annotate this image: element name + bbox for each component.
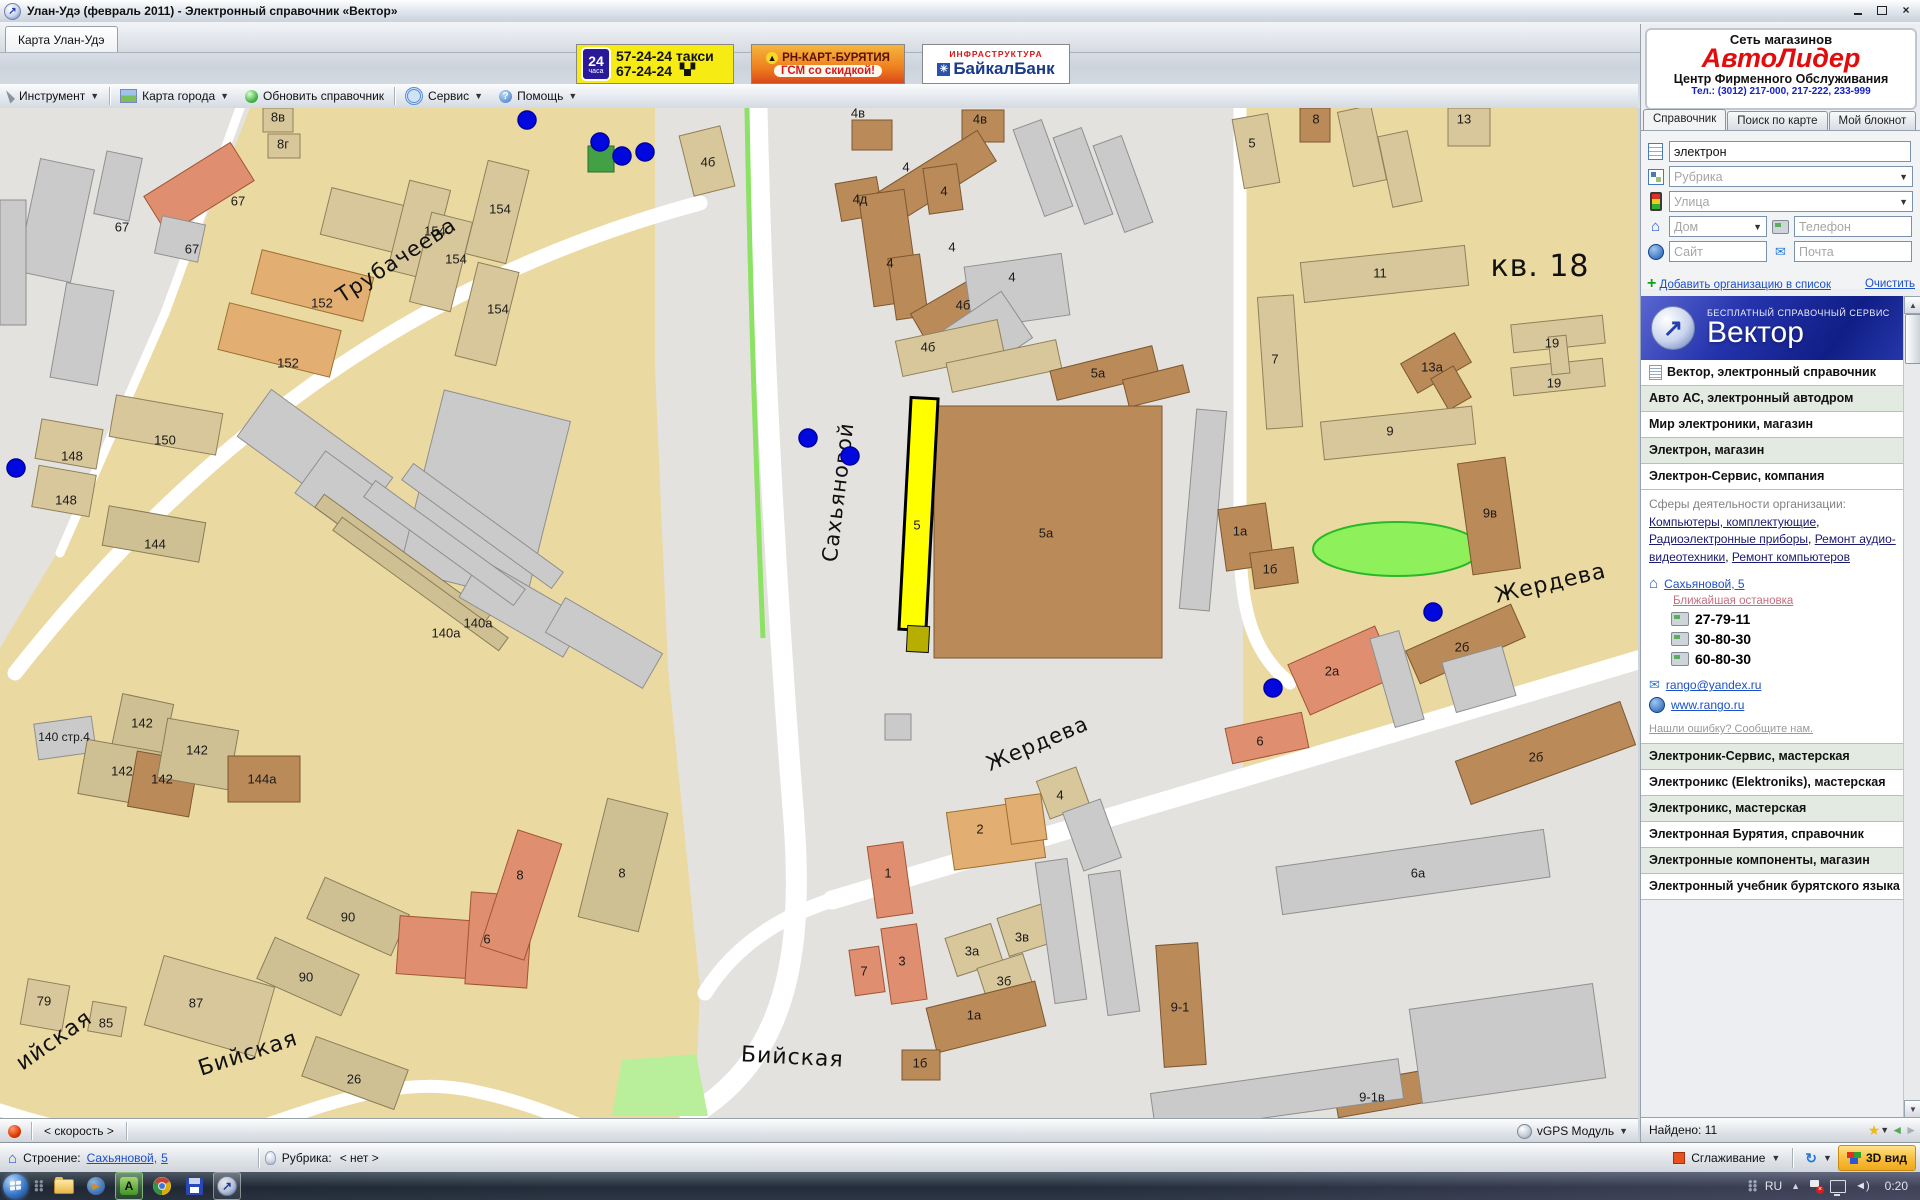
- bus-stop-marker[interactable]: [799, 429, 817, 447]
- address-link[interactable]: Сахьяновой, 5: [1664, 577, 1744, 591]
- building-number-link[interactable]: 5: [161, 1151, 168, 1165]
- building-label: 4в: [851, 108, 865, 120]
- building-label: 4: [1056, 787, 1063, 802]
- email-icon: ✉: [1649, 677, 1660, 693]
- phone-number: 27-79-11: [1695, 611, 1750, 627]
- building-label: 148: [61, 448, 83, 463]
- map-icon: [120, 89, 137, 103]
- building-label: 8в: [271, 109, 285, 124]
- building-label: 6а: [1411, 865, 1426, 880]
- ad-phone: Тел.: (3012) 217-000, 217-222, 233-999: [1647, 86, 1915, 97]
- building-label: 9-1: [1171, 999, 1190, 1014]
- rubric-value: < нет >: [340, 1151, 379, 1165]
- lawn: [1313, 522, 1481, 576]
- add-organization-link[interactable]: Добавить организацию в список: [1660, 279, 1831, 291]
- building-label: 3б: [997, 973, 1012, 988]
- bank-name: БайкалБанк: [953, 59, 1054, 79]
- taskbar-mediaplayer-icon[interactable]: ▶: [83, 1173, 109, 1199]
- taskbar-explorer-icon[interactable]: [51, 1173, 77, 1199]
- ad-line3: Центр Фирменного Обслуживания: [1647, 72, 1915, 86]
- document-icon: [1649, 365, 1662, 380]
- building-label: 8: [1312, 111, 1319, 126]
- report-error-link[interactable]: Нашли ошибку? Сообщите нам.: [1649, 723, 1896, 735]
- address-house-icon: ⌂: [1649, 576, 1658, 591]
- bus-stop-marker[interactable]: [613, 147, 631, 165]
- building-label: 154: [445, 251, 467, 266]
- help-icon: ?: [499, 90, 512, 103]
- taxi-checker-icon: ▚▞: [680, 64, 693, 79]
- volume-icon[interactable]: ◄): [1855, 1180, 1870, 1192]
- website-icon: [1649, 697, 1665, 713]
- bus-stop-marker[interactable]: [841, 447, 859, 465]
- orb-icon: [245, 90, 258, 103]
- sidebar-tabs: СправочникПоиск по картеМой блокнот: [1643, 108, 1919, 130]
- toolbar-item-help[interactable]: ?Помощь▼: [491, 84, 585, 108]
- building-label: 142: [111, 763, 133, 778]
- building-label: 4в: [973, 111, 987, 126]
- street-icon: [1650, 192, 1662, 211]
- result-item[interactable]: Электронные компоненты, магазин: [1641, 848, 1904, 874]
- mail-input[interactable]: [1794, 241, 1912, 262]
- toolbar-item-label: Инструмент: [19, 89, 85, 103]
- building-label: 154: [487, 301, 509, 316]
- 24h-badge: 24часа: [581, 47, 611, 81]
- organization-icon: [1648, 143, 1663, 160]
- dropdown-arrow-icon: ▼: [568, 91, 577, 101]
- toolbar: Инструмент▼Карта города▼Обновить справоч…: [0, 84, 1638, 109]
- building-label: 152: [277, 355, 299, 370]
- sidebar-tab-spravochnik[interactable]: Справочник: [1643, 109, 1726, 130]
- rn-card-ad-banner[interactable]: ▲ РН-КАРТ-БУРЯТИЯ ГСМ со скидкой!: [751, 44, 905, 84]
- result-item-label: Электроник-Сервис, мастерская: [1649, 744, 1850, 769]
- building-label: 4д: [853, 191, 868, 206]
- building-label: 9-1в: [1359, 1089, 1385, 1104]
- forward-arrow-icon[interactable]: ►: [1905, 1123, 1917, 1137]
- ad-brand: АвтоЛидер: [1647, 45, 1915, 72]
- baikalbank-ad-banner[interactable]: ИНФРАСТРУКТУРА ✳ БайкалБанк: [922, 44, 1070, 84]
- building-label: 6: [1256, 733, 1263, 748]
- building-label: 8г: [277, 136, 289, 151]
- building-label: 140а: [432, 625, 462, 640]
- phone-input[interactable]: [1794, 216, 1912, 237]
- dropdown-arrow-icon: ▼: [220, 91, 229, 101]
- bank-top-label: ИНФРАСТРУКТУРА: [949, 49, 1042, 59]
- action-center-flag-icon[interactable]: [1809, 1180, 1821, 1193]
- building-status-bar: ⌂ Строение: Сахьяновой, 5 Рубрика: < нет…: [0, 1142, 1920, 1173]
- building-label: 26: [347, 1071, 361, 1086]
- map-status-bar: < скорость > vGPS Модуль ▼: [0, 1118, 1638, 1143]
- smoothing-dropdown-arrow[interactable]: ▼: [1771, 1153, 1780, 1163]
- view-3d-button[interactable]: 3D вид: [1838, 1145, 1916, 1171]
- toolbar-item-map[interactable]: Карта города▼: [112, 84, 237, 108]
- building-label: 67: [185, 241, 199, 256]
- result-item[interactable]: Электронный учебник бурятского языка: [1641, 874, 1904, 900]
- house-combo[interactable]: Дом▼: [1669, 216, 1767, 237]
- vgps-module[interactable]: vGPS Модуль: [1537, 1124, 1614, 1138]
- building-label: 85: [99, 1015, 113, 1030]
- map-canvas[interactable]: 6767678в8г4б1541541541541521521501481481…: [0, 108, 1638, 1118]
- bus-stop-marker[interactable]: [7, 459, 25, 477]
- building-label: 2: [976, 821, 983, 836]
- building-label: 2а: [1325, 663, 1340, 678]
- nearest-stop-link[interactable]: Ближайшая остановка: [1673, 595, 1793, 607]
- smoothing-icon: [1673, 1152, 1685, 1164]
- ad-banner-row: 24часа 57-24-24 такси 67-24-24 ▚▞ ▲ РН-К…: [576, 44, 1070, 82]
- building-label: 5: [1248, 135, 1255, 150]
- spheres-links: Компьютеры, комплектующие, Радиоэлектрон…: [1649, 514, 1896, 566]
- building-label: 3а: [965, 943, 980, 958]
- building-label: 140 стр.4: [38, 730, 90, 744]
- building-label: 19: [1545, 335, 1559, 350]
- building-label: 5а: [1091, 365, 1106, 380]
- cubes-icon: [1847, 1152, 1861, 1164]
- building-label: 2б: [1529, 749, 1544, 764]
- refresh-dropdown-arrow[interactable]: ▼: [1823, 1153, 1832, 1163]
- building-label: 67: [115, 219, 129, 234]
- email-link[interactable]: rango@yandex.ru: [1666, 678, 1762, 692]
- website-link[interactable]: www.rango.ru: [1671, 698, 1744, 712]
- taskbar-chrome-icon[interactable]: [149, 1173, 175, 1199]
- rubric-combo[interactable]: Рубрика▼: [1669, 166, 1913, 187]
- building-label: 1а: [1233, 523, 1248, 538]
- toolbar-item-label: Карта города: [142, 89, 215, 103]
- phone-icon: [1772, 220, 1789, 234]
- building-label: 8: [516, 867, 523, 882]
- phone-icon: [1671, 652, 1689, 666]
- building-label: 4б: [921, 339, 936, 354]
- green-area: [612, 1054, 708, 1116]
- found-count: Найдено: 11: [1649, 1123, 1717, 1137]
- building-label: 140а: [464, 615, 494, 630]
- back-arrow-icon[interactable]: ◄: [1891, 1123, 1903, 1137]
- building-label: 144а: [248, 771, 278, 786]
- clear-link[interactable]: Очистить: [1865, 278, 1915, 290]
- gear-icon: [405, 87, 423, 105]
- record-dot-icon[interactable]: [8, 1125, 21, 1138]
- rubric-icon: [1648, 169, 1664, 185]
- building-label: 11: [1373, 265, 1387, 280]
- language-indicator[interactable]: RU: [1765, 1179, 1782, 1193]
- building-label: 152: [311, 295, 333, 310]
- building-label: 4б: [701, 154, 716, 169]
- street-combo[interactable]: Улица▼: [1669, 191, 1913, 212]
- building-label: 142: [131, 715, 153, 730]
- rosneft-logo-icon: ▲: [766, 52, 778, 64]
- search-form: Рубрика▼ Улица▼ ⌂ Дом▼ ✉: [1641, 130, 1920, 289]
- building-label: 7: [860, 963, 867, 978]
- phone-number: 30-80-30: [1695, 631, 1751, 647]
- building-label: 150: [154, 432, 176, 447]
- building-label: 3: [898, 953, 905, 968]
- map-building[interactable]: [1005, 794, 1047, 845]
- close-button[interactable]: ×: [1898, 3, 1914, 17]
- results-list: Вектор, электронный справочникАвто АС, э…: [1641, 360, 1904, 900]
- building-label: 5а: [1039, 525, 1054, 540]
- found-bar: Найдено: 11 ★ ▼ ◄ ►: [1641, 1117, 1920, 1142]
- mail-icon: ✉: [1775, 244, 1786, 260]
- vektor-service-label: БЕСПЛАТНЫЙ СПРАВОЧНЫЙ СЕРВИС: [1707, 308, 1890, 318]
- rubric-label: Рубрика:: [282, 1151, 332, 1165]
- building-label: 1б: [913, 1055, 928, 1070]
- result-item[interactable]: Электроникс, мастерская: [1641, 796, 1904, 822]
- building-label: 148: [55, 492, 77, 507]
- building-label: 8: [618, 865, 625, 880]
- query-input[interactable]: [1669, 141, 1911, 162]
- sidebar: Сеть магазинов АвтоЛидер Центр Фирменног…: [1640, 24, 1920, 1142]
- phone-number: 60-80-30: [1695, 651, 1751, 667]
- building-label: 3в: [1015, 929, 1029, 944]
- rn-subtitle: ГСМ со скидкой!: [774, 65, 882, 77]
- map-building[interactable]: [906, 625, 929, 652]
- taskbar-save-icon[interactable]: [181, 1173, 207, 1199]
- sidebar-tab-map-search[interactable]: Поиск по карте: [1727, 111, 1827, 130]
- result-item[interactable]: Электроникс (Elektroniks), мастерская: [1641, 770, 1904, 796]
- scrollbar-thumb[interactable]: [1905, 314, 1920, 364]
- system-tray: ●●●●●● RU ▲ ◄) 0:20: [1748, 1179, 1920, 1193]
- taxi-ad-banner[interactable]: 24часа 57-24-24 такси 67-24-24 ▚▞: [576, 44, 734, 84]
- building-label: 154: [489, 201, 511, 216]
- bank-logo-icon: ✳: [937, 63, 950, 76]
- autolider-ad[interactable]: Сеть магазинов АвтоЛидер Центр Фирменног…: [1645, 28, 1917, 110]
- vektor-brand: Вектор: [1707, 318, 1890, 348]
- result-item-label: Электронный учебник бурятского языка: [1649, 874, 1900, 899]
- toolbar-item-label: Сервис: [428, 89, 469, 103]
- building-label: 90: [299, 969, 313, 984]
- vektor-logo-icon: ↗: [1651, 306, 1695, 350]
- sphere-link[interactable]: Ремонт компьютеров: [1732, 550, 1850, 564]
- toolbar-item-cursor[interactable]: Инструмент▼: [0, 84, 107, 108]
- window-title: Улан-Удэ (февраль 2011) - Электронный сп…: [27, 4, 398, 18]
- building-label: 142: [186, 742, 208, 757]
- site-icon: [1648, 244, 1664, 260]
- building-label: 13а: [1421, 359, 1443, 374]
- star-dropdown-arrow[interactable]: ▼: [1880, 1125, 1889, 1135]
- result-item-label: Электронная Бурятия, справочник: [1649, 822, 1864, 847]
- clock[interactable]: 0:20: [1885, 1179, 1908, 1193]
- scroll-down-arrow[interactable]: ▼: [1904, 1100, 1920, 1118]
- bus-stop-marker[interactable]: [1424, 603, 1442, 621]
- result-item-label: Электроникс, мастерская: [1649, 796, 1806, 821]
- toolbar-item-label: Обновить справочник: [263, 89, 384, 103]
- rubric-bulb-icon: [265, 1151, 276, 1165]
- result-item-label: Электроникс (Elektroniks), мастерская: [1649, 770, 1886, 795]
- tray-handle[interactable]: ●●●●●●: [1748, 1180, 1756, 1192]
- phone-icon: [1671, 632, 1689, 646]
- building-label: 4: [902, 159, 909, 174]
- building-label: 5: [913, 517, 920, 532]
- cursor-icon: [6, 88, 16, 103]
- vgps-icon: [1517, 1124, 1532, 1139]
- dropdown-arrow-icon: ▼: [474, 91, 483, 101]
- map-building[interactable]: [0, 200, 26, 325]
- building-label: 9в: [1483, 505, 1497, 520]
- minimize-button[interactable]: [1850, 3, 1866, 17]
- sphere-link[interactable]: Радиоэлектронные приборы: [1649, 532, 1808, 546]
- city-map[interactable]: 6767678в8г4б1541541541541521521501481481…: [0, 108, 1638, 1118]
- building-label: 79: [37, 993, 51, 1008]
- result-item-label: Авто АС, электронный автодром: [1649, 386, 1853, 411]
- taskbar: ●●●●●● ▶ А ↗ ●●●●●● RU ▲ ◄) 0:20: [0, 1172, 1920, 1200]
- bus-stop-marker[interactable]: [591, 133, 609, 151]
- site-input[interactable]: [1669, 241, 1767, 262]
- taxi-phone-2: 67-24-24: [616, 64, 672, 79]
- app-icon: ↗: [4, 3, 21, 20]
- building-label: 4б: [956, 297, 971, 312]
- toolbar-item-gear[interactable]: Сервис▼: [397, 84, 491, 108]
- vgps-dropdown-arrow[interactable]: ▼: [1619, 1126, 1628, 1136]
- building-label: 4: [948, 239, 955, 254]
- building-label: 13: [1457, 111, 1471, 126]
- sphere-link[interactable]: Компьютеры, комплектующие: [1649, 515, 1816, 529]
- taskbar-vektor-icon[interactable]: ↗: [213, 1172, 241, 1200]
- result-item[interactable]: Электроник-Сервис, мастерская: [1641, 744, 1904, 770]
- building-label: 87: [189, 995, 203, 1010]
- speed-control[interactable]: < скорость >: [44, 1124, 114, 1138]
- building-label: 1б: [1263, 561, 1278, 576]
- start-button[interactable]: [3, 1174, 28, 1199]
- building-label: 4: [886, 255, 893, 270]
- building-label: 90: [341, 909, 355, 924]
- building-label: 1: [884, 865, 891, 880]
- toolbar-separator: [109, 87, 110, 105]
- building-label: 7: [1271, 351, 1278, 366]
- chrome-icon: [153, 1177, 171, 1195]
- vektor-banner[interactable]: ↗ БЕСПЛАТНЫЙ СПРАВОЧНЫЙ СЕРВИС Вектор: [1641, 296, 1920, 360]
- title-bar: ↗ Улан-Удэ (февраль 2011) - Электронный …: [0, 0, 1920, 22]
- toolbar-item-orb[interactable]: Обновить справочник: [237, 84, 392, 108]
- building-label: 2б: [1455, 639, 1470, 654]
- result-item-label: Электрон-Сервис, компания: [1649, 464, 1824, 489]
- result-item[interactable]: Авто АС, электронный автодром: [1641, 386, 1904, 412]
- smoothing-control[interactable]: Сглаживание: [1691, 1151, 1765, 1165]
- building-label: 4: [940, 183, 947, 198]
- sidebar-tab-notebook[interactable]: Мой блокнот: [1829, 111, 1917, 130]
- phone-icon: [1671, 612, 1689, 626]
- result-item[interactable]: Мир электроники, магазин: [1641, 412, 1904, 438]
- rn-title: РН-КАРТ-БУРЯТИЯ: [782, 52, 890, 64]
- result-item[interactable]: Электрон, магазин: [1641, 438, 1904, 464]
- bus-stop-marker[interactable]: [636, 143, 654, 161]
- result-item-label: Электрон, магазин: [1649, 438, 1764, 463]
- dropdown-arrow-icon: ▼: [90, 91, 99, 101]
- quicklaunch-handle[interactable]: ●●●●●●: [34, 1180, 42, 1192]
- plus-icon: +: [1647, 275, 1656, 292]
- building-label: 144: [144, 536, 166, 551]
- building-label: 1а: [967, 1007, 982, 1022]
- result-item[interactable]: Электронная Бурятия, справочник: [1641, 822, 1904, 848]
- building-label: 67: [231, 193, 245, 208]
- bus-stop-marker[interactable]: [518, 111, 536, 129]
- building-home-icon: ⌂: [8, 1151, 17, 1166]
- scroll-up-arrow[interactable]: ▲: [1904, 296, 1920, 314]
- tab-map-ulan-ude[interactable]: Карта Улан-Удэ: [5, 26, 118, 52]
- result-item[interactable]: Вектор, электронный справочник: [1641, 360, 1904, 386]
- favorites-star-icon[interactable]: ★: [1868, 1122, 1881, 1139]
- bus-stop-marker[interactable]: [1264, 679, 1282, 697]
- block-label: кв. 18: [1490, 249, 1589, 284]
- sidebar-scrollbar[interactable]: ▲ ▼: [1903, 296, 1920, 1118]
- toolbar-separator: [394, 87, 395, 105]
- organization-detail: Сферы деятельности организации:Компьютер…: [1641, 490, 1904, 744]
- result-item[interactable]: Электрон-Сервис, компания: [1641, 464, 1904, 490]
- building-label: 9: [1386, 423, 1393, 438]
- building-street-link[interactable]: Сахьяновой,: [87, 1151, 157, 1165]
- taxi-phone-1: 57-24-24 такси: [616, 49, 714, 64]
- taskbar-autolider-icon[interactable]: А: [115, 1172, 143, 1200]
- map-building[interactable]: [852, 120, 892, 150]
- building-label: Строение:: [23, 1151, 81, 1165]
- network-icon[interactable]: [1830, 1180, 1846, 1193]
- result-item-label: Электронные компоненты, магазин: [1649, 848, 1870, 873]
- spheres-label: Сферы деятельности организации:: [1649, 497, 1896, 511]
- result-item-label: Вектор, электронный справочник: [1667, 360, 1876, 385]
- toolbar-item-label: Помощь: [517, 89, 563, 103]
- map-building[interactable]: [885, 714, 911, 740]
- windows-flag-icon: [10, 1180, 22, 1192]
- building-label: 4: [1008, 269, 1015, 284]
- restore-button[interactable]: [1874, 3, 1890, 17]
- building-label: 142: [151, 771, 173, 786]
- house-icon: ⌂: [1651, 219, 1660, 234]
- tray-expand-arrow[interactable]: ▲: [1791, 1181, 1800, 1191]
- building-label: 19: [1547, 375, 1561, 390]
- result-item-label: Мир электроники, магазин: [1649, 412, 1813, 437]
- building-label: 6: [483, 931, 490, 946]
- refresh-icon[interactable]: ↻: [1805, 1150, 1817, 1167]
